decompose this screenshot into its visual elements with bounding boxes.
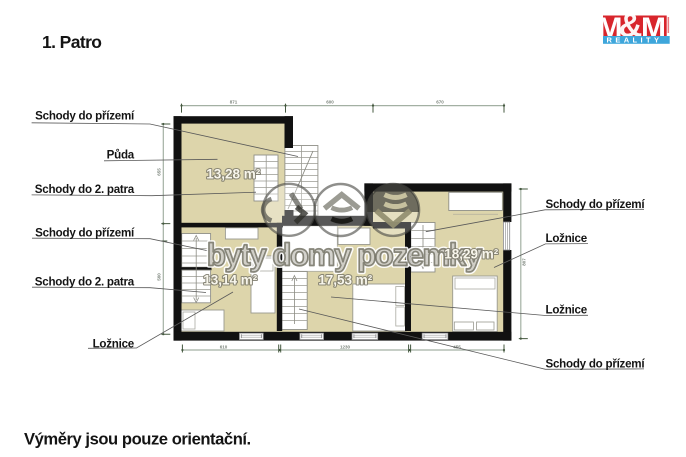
svg-text:Schody do 2. patra: Schody do 2. patra <box>35 183 135 196</box>
svg-text:byty domy pozemky: byty domy pozemky <box>207 237 483 273</box>
svg-text:655: 655 <box>156 168 161 176</box>
svg-text:670: 670 <box>436 99 444 104</box>
svg-text:13,14 m²: 13,14 m² <box>203 272 258 287</box>
svg-text:1. Patro: 1. Patro <box>42 32 101 52</box>
svg-text:Schody do přízemí: Schody do přízemí <box>546 357 646 370</box>
svg-text:Půda: Půda <box>107 148 135 161</box>
svg-text:REALITY: REALITY <box>607 36 663 45</box>
svg-text:13,28 m²: 13,28 m² <box>206 166 261 181</box>
svg-text:Schody do přízemí: Schody do přízemí <box>35 110 135 123</box>
svg-text:Schody do přízemí: Schody do přízemí <box>35 226 135 239</box>
svg-text:18,29 m²: 18,29 m² <box>444 246 499 261</box>
svg-text:Ložnice: Ložnice <box>546 304 588 317</box>
svg-text:Ložnice: Ložnice <box>93 337 135 350</box>
svg-text:600: 600 <box>326 99 334 104</box>
svg-text:560: 560 <box>156 273 161 281</box>
svg-text:871: 871 <box>230 99 238 104</box>
svg-text:17,53 m²: 17,53 m² <box>318 272 373 287</box>
svg-text:Výměry jsou pouze orientační.: Výměry jsou pouze orientační. <box>24 429 251 448</box>
svg-text:Schody do 2. patra: Schody do 2. patra <box>35 275 135 288</box>
svg-text:Schody do přízemí: Schody do přízemí <box>546 198 646 211</box>
svg-text:610: 610 <box>220 345 228 350</box>
svg-text:1230: 1230 <box>340 345 351 350</box>
svg-text:807: 807 <box>522 258 527 266</box>
svg-text:Ložnice: Ložnice <box>546 232 588 245</box>
